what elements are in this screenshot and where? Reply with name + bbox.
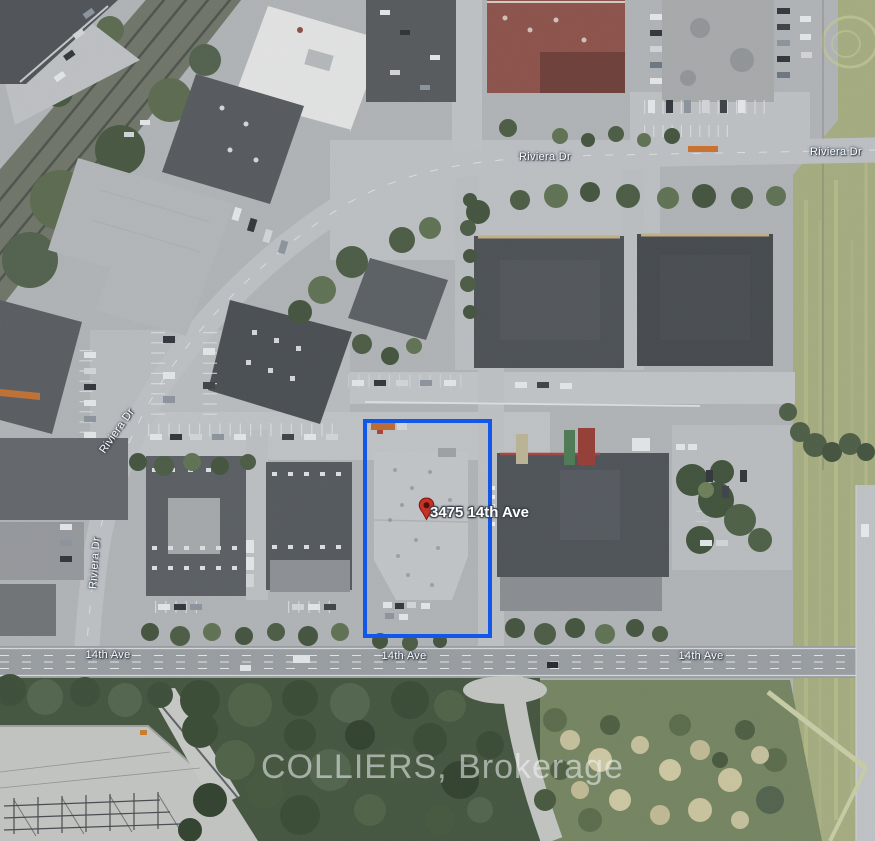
- satellite-map: Riviera Dr Riviera Dr Riviera Dr Riviera…: [0, 0, 875, 841]
- street-label-riviera-1: Riviera Dr: [519, 151, 571, 163]
- street-label-riviera-2: Riviera Dr: [810, 146, 862, 158]
- street-label-14th-ave-2: 14th Ave: [381, 650, 426, 662]
- brokerage-watermark: COLLIERS, Brokerage: [261, 748, 624, 787]
- pin-address-label: 3475 14th Ave: [430, 504, 529, 521]
- property-highlight-outline: [363, 419, 492, 638]
- street-label-14th-ave-1: 14th Ave: [85, 649, 130, 661]
- street-label-14th-ave-3: 14th Ave: [678, 650, 723, 662]
